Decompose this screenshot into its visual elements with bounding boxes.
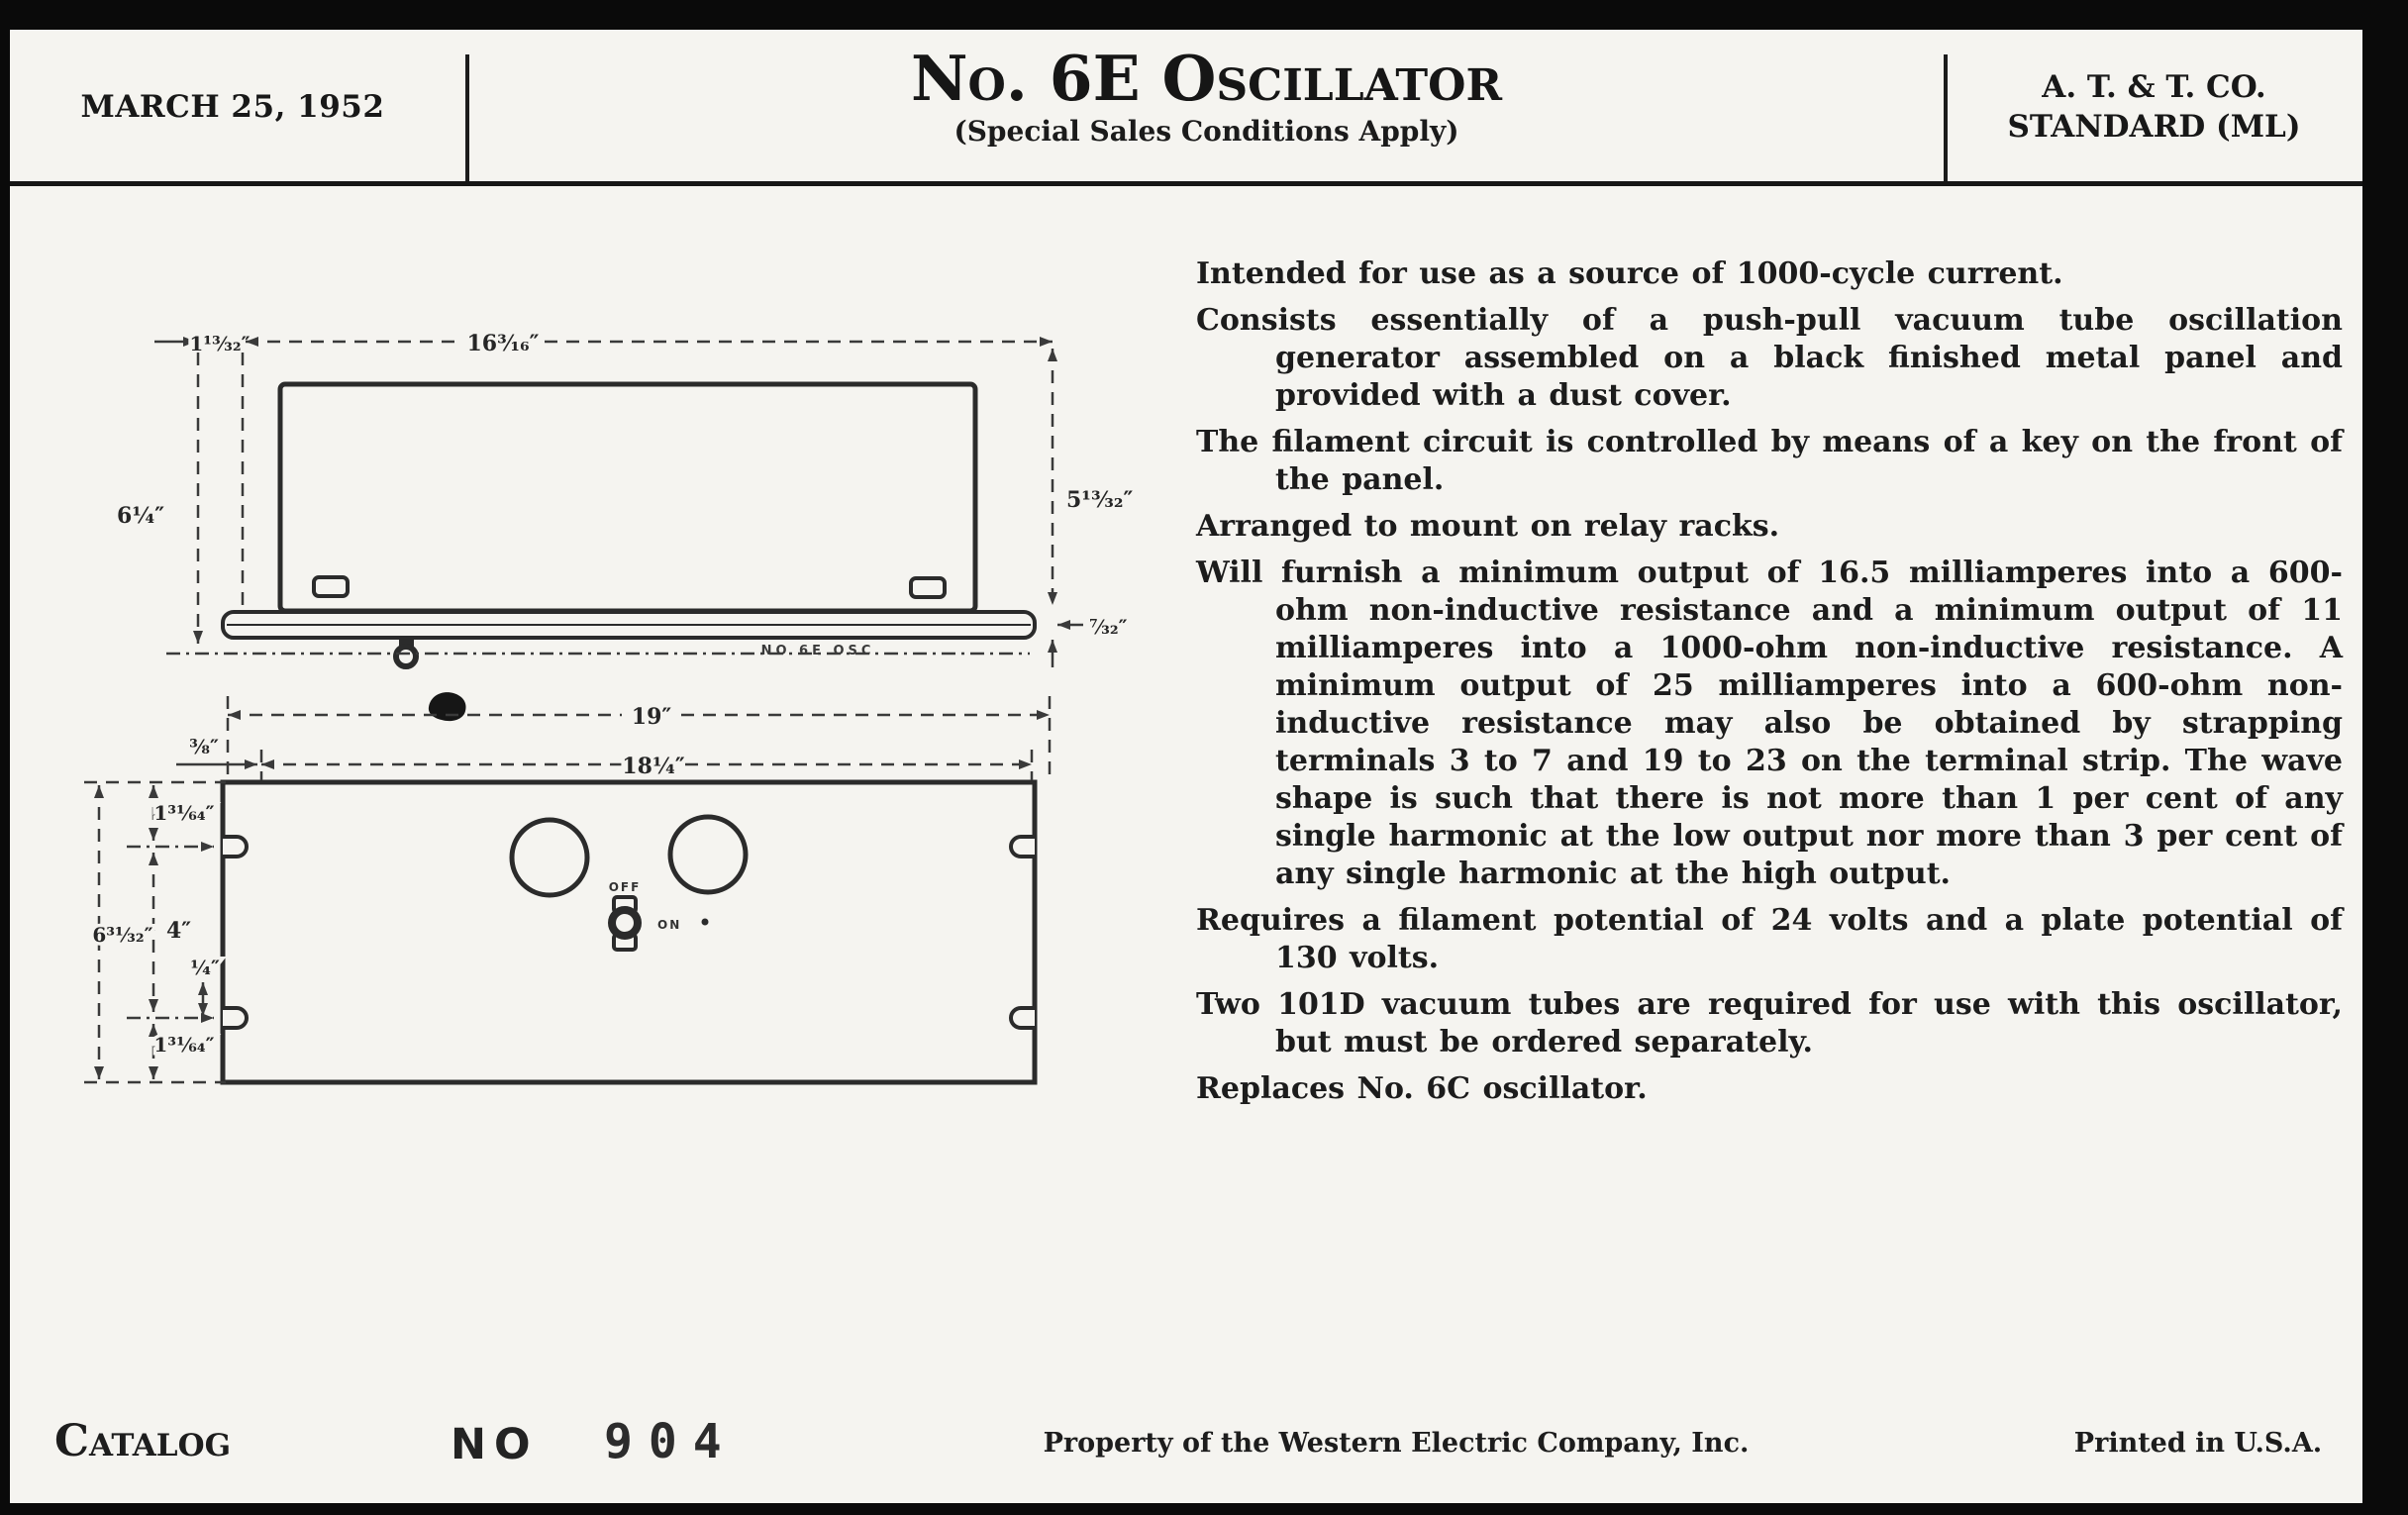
panel-mark-dot <box>702 919 709 926</box>
front-view: OFF ON 19″ 18¼″ ³⁄₈″ 1³¹⁄₆₄″ <box>84 692 1050 1082</box>
page-subtitle: (Special Sales Conditions Apply) <box>469 115 1944 149</box>
dim-mounting-width: 18¼″ <box>622 754 685 779</box>
dim-slot-bottom: 1³¹⁄₆₄″ <box>153 1033 214 1057</box>
description-paragraph: Requires a filament potential of 24 volt… <box>1196 902 2343 977</box>
description-paragraph: Replaces No. 6C oscillator. <box>1196 1070 2343 1108</box>
side-view: NO 6E OSC 1¹³⁄₃₂″ 16³⁄₁₆″ 6¼″ 5¹³⁄₃₂″ ⁷⁄… <box>117 331 1134 667</box>
mounting-slot-top-left <box>223 837 247 857</box>
dust-cover-outline <box>280 384 975 611</box>
dim-plate-thickness: ⁷⁄₃₂″ <box>1089 615 1128 639</box>
key-knob <box>396 647 416 666</box>
org-block: A. T. & T. CO. STANDARD (ML) <box>1948 67 2360 147</box>
org-standard: STANDARD (ML) <box>1948 107 2360 147</box>
issue-date: MARCH 25, 1952 <box>10 89 455 125</box>
property-notice: Property of the Western Electric Company… <box>1030 1428 1762 1459</box>
switch-on-label: ON <box>657 918 681 932</box>
dim-quarter: ¼″ <box>190 956 220 979</box>
description-paragraph: Arranged to mount on relay racks. <box>1196 508 2343 546</box>
tube-hole-right <box>670 817 746 892</box>
page-title: No. 6E Oscillator <box>469 44 1944 113</box>
panel-designation-label: NO 6E OSC <box>761 644 875 658</box>
key-switch-bushing <box>612 910 638 936</box>
header-rule <box>10 181 2362 186</box>
catalog-number-stamp: 904 <box>604 1414 738 1469</box>
description-paragraph: Will furnish a minimum output of 16.5 mi… <box>1196 555 2343 893</box>
mounting-slot-bottom-right <box>1011 1008 1035 1028</box>
dim-cover-offset: 1¹³⁄₃₂″ <box>189 332 250 355</box>
description-paragraph: Intended for use as a source of 1000-cyc… <box>1196 255 2343 293</box>
tube-hole-left <box>512 820 587 895</box>
dimension-drawing: NO 6E OSC 1¹³⁄₃₂″ 16³⁄₁₆″ 6¼″ 5¹³⁄₃₂″ ⁷⁄… <box>59 317 1139 1109</box>
description-paragraph: Two 101D vacuum tubes are required for u… <box>1196 986 2343 1061</box>
description-paragraph: The filament circuit is controlled by me… <box>1196 424 2343 499</box>
dim-panel-width: 19″ <box>632 704 672 730</box>
dim-cover-width: 16³⁄₁₆″ <box>466 331 539 356</box>
dim-slot-spacing: 4″ <box>166 918 191 944</box>
scanned-catalog-sheet: MARCH 25, 1952 No. 6E Oscillator (Specia… <box>0 0 2408 1515</box>
cover-latch-left <box>314 577 348 596</box>
cover-latch-right <box>911 578 945 597</box>
printed-in-usa: Printed in U.S.A. <box>2050 1428 2347 1459</box>
description-paragraph: Consists essentially of a push-pull vacu… <box>1196 302 2343 415</box>
catalog-page: MARCH 25, 1952 No. 6E Oscillator (Specia… <box>10 30 2362 1503</box>
catalog-no-label: NO <box>451 1420 539 1469</box>
description-column: Intended for use as a source of 1000-cyc… <box>1196 255 2343 1117</box>
dim-edge-offset: ³⁄₈″ <box>189 735 219 758</box>
dim-panel-height-side: 5¹³⁄₃₂″ <box>1066 487 1134 513</box>
mounting-slot-bottom-left <box>223 1008 247 1028</box>
dim-cover-height: 6¼″ <box>117 503 164 529</box>
catalog-label: Catalog <box>54 1416 231 1466</box>
mounting-slot-top-right <box>1011 837 1035 857</box>
header-title-block: No. 6E Oscillator (Special Sales Conditi… <box>469 44 1944 149</box>
org-name: A. T. & T. CO. <box>1948 67 2360 107</box>
switch-off-label: OFF <box>609 880 642 894</box>
dim-slot-top: 1³¹⁄₆₄″ <box>153 801 214 825</box>
dim-panel-height-front: 6³¹⁄₃₂″ <box>92 923 152 947</box>
ink-blot <box>429 692 466 721</box>
